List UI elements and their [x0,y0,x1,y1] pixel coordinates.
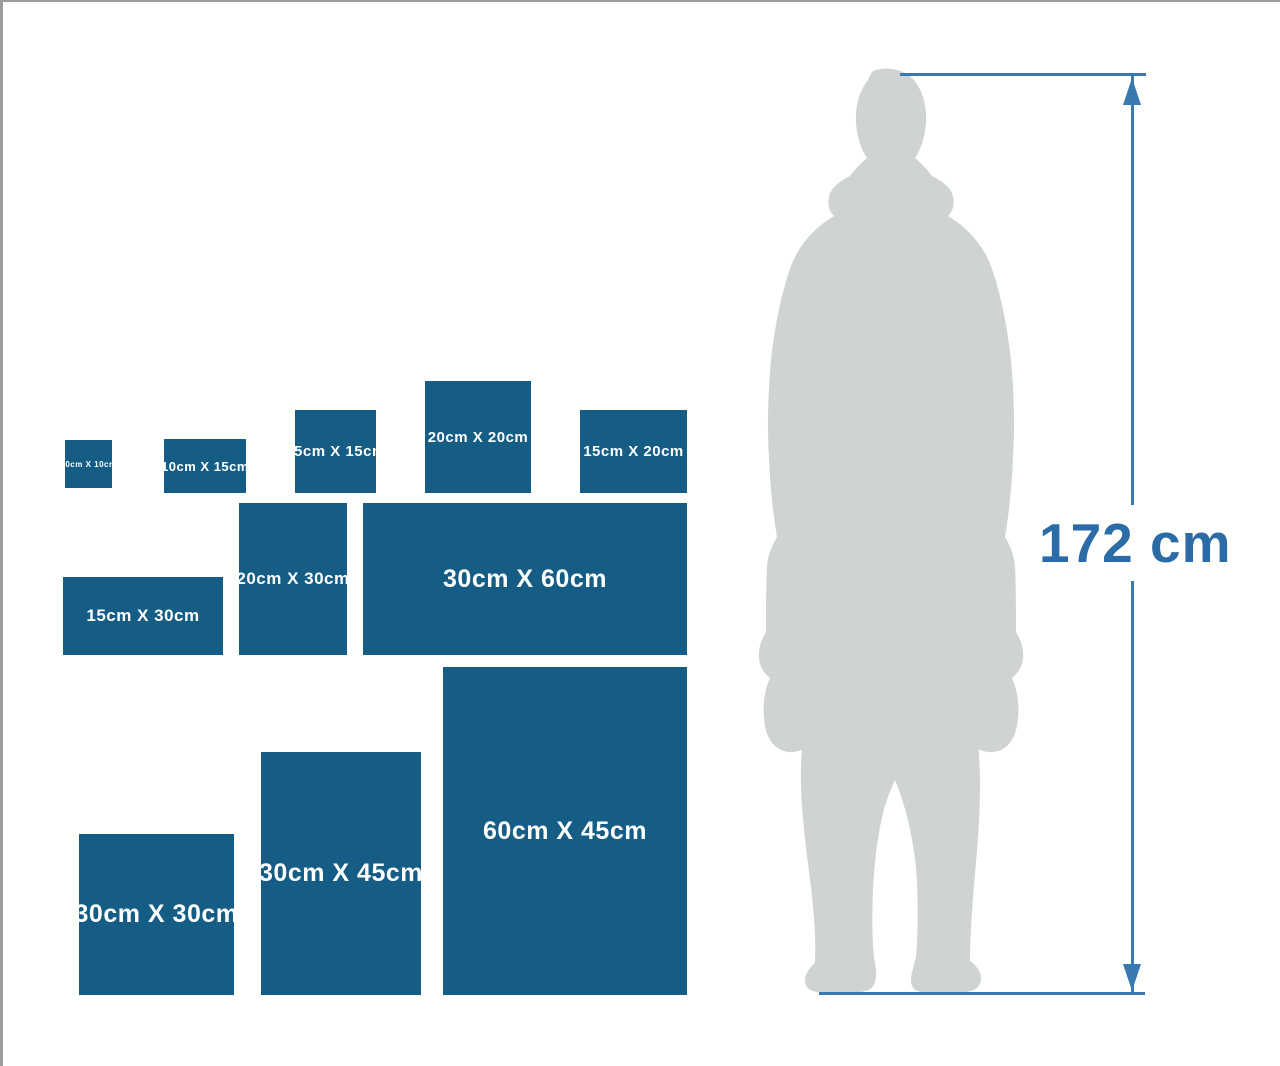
size-box: 10cm X 10cm [65,440,112,488]
size-box-label: 10cm X 15cm [161,459,249,474]
size-box: 20cm X 20cm [425,381,531,493]
person-silhouette-path [759,69,1023,992]
arrowhead-up-icon [1123,78,1141,105]
size-box-label: 60cm X 45cm [483,817,647,846]
top-extent-line [900,73,1146,76]
size-box-label: 10cm X 10cm [60,460,116,469]
size-box-label: 15cm X 15cm [285,443,386,460]
size-box-label: 20cm X 20cm [428,429,529,446]
size-box: 10cm X 15cm [164,439,246,493]
size-box: 30cm X 60cm [363,503,687,655]
size-box: 15cm X 15cm [295,410,376,493]
size-box: 30cm X 30cm [79,834,234,995]
size-box-label: 15cm X 20cm [583,443,684,460]
size-box: 15cm X 30cm [63,577,223,655]
person-silhouette [730,65,1030,995]
size-comparison-diagram: 10cm X 10cm10cm X 15cm15cm X 15cm20cm X … [0,0,1280,1066]
size-box: 15cm X 20cm [580,410,687,493]
size-box-label: 20cm X 30cm [236,569,349,589]
bottom-extent-line [819,992,1145,995]
arrowhead-down-icon [1123,964,1141,991]
size-box: 20cm X 30cm [239,503,347,655]
height-label: 172 cm [1031,505,1240,581]
size-box-label: 30cm X 45cm [259,859,423,888]
size-box: 60cm X 45cm [443,667,687,995]
size-box-label: 30cm X 60cm [443,565,607,594]
size-box-label: 30cm X 30cm [75,900,239,929]
size-box: 30cm X 45cm [261,752,421,995]
size-box-label: 15cm X 30cm [86,606,199,626]
